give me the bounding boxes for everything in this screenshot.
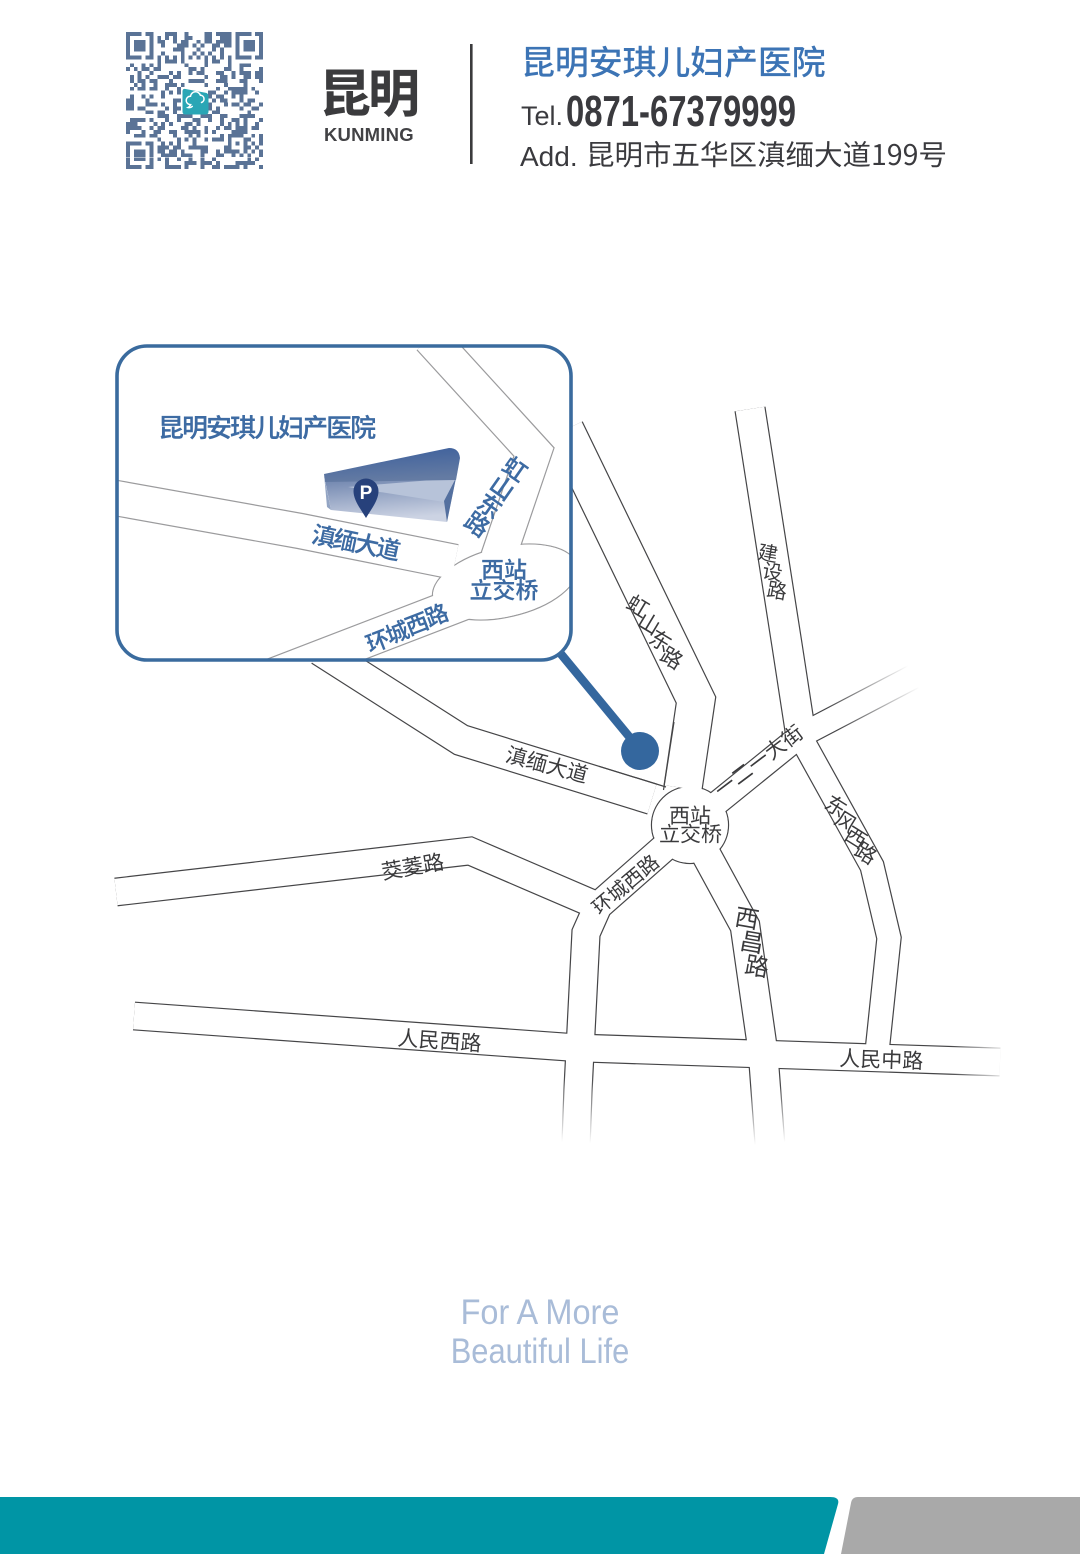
- svg-text:P: P: [360, 483, 373, 504]
